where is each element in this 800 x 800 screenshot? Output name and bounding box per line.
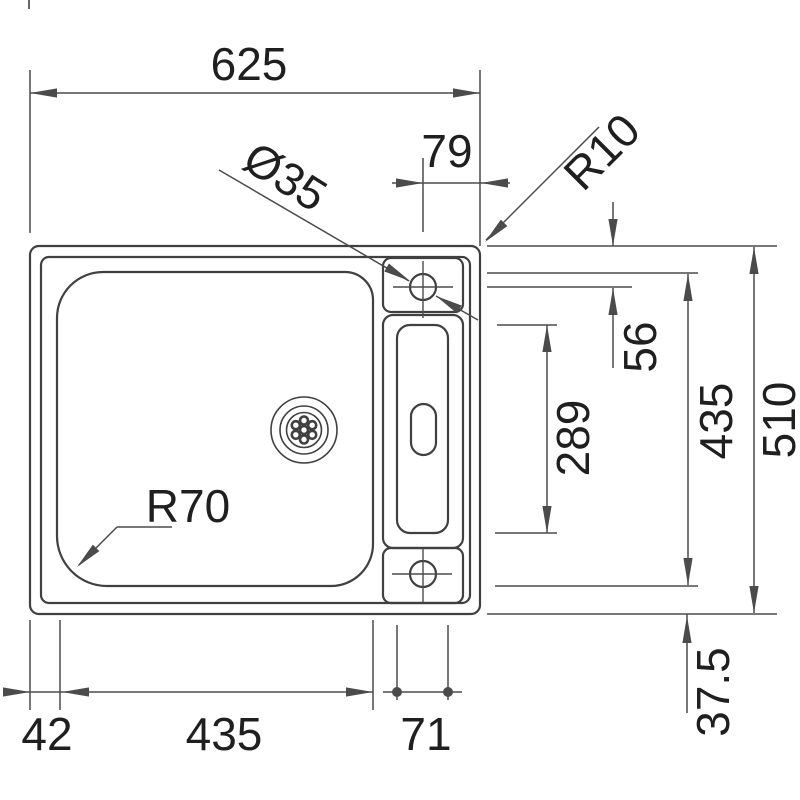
drain bbox=[271, 397, 337, 463]
recess-width-label: 71 bbox=[400, 708, 451, 760]
bowl-width-label: 435 bbox=[186, 708, 263, 760]
leader-bowl-radius: R70 bbox=[74, 480, 230, 570]
bowl-length-label: 435 bbox=[690, 383, 742, 460]
overall-width-label: 625 bbox=[211, 38, 288, 90]
left-margin-label: 42 bbox=[21, 708, 72, 760]
tap-strip bbox=[383, 258, 463, 603]
overall-depth-label: 510 bbox=[753, 382, 800, 459]
drainer-tray bbox=[383, 315, 463, 548]
drain-strainer-holes bbox=[292, 417, 316, 444]
sink-outer-edge bbox=[30, 246, 480, 614]
rim-radius-label: R10 bbox=[553, 103, 649, 199]
tap-inset-label: 56 bbox=[614, 321, 666, 372]
dimension-bowl-length: 435 bbox=[683, 274, 742, 585]
bowl-radius-label: R70 bbox=[146, 480, 230, 532]
dimension-recess-length: 289 bbox=[542, 325, 599, 533]
overflow-slot bbox=[411, 404, 436, 455]
dimension-bottom-row: 42 435 71 bbox=[3, 620, 462, 760]
sink-inner-rim bbox=[41, 257, 470, 603]
dimension-overall-depth: 510 bbox=[749, 247, 800, 613]
dimension-edge-margin: 37.5 bbox=[682, 614, 739, 737]
drain-outer-ring bbox=[271, 397, 337, 463]
dimension-tap-offset: 79 bbox=[392, 125, 510, 232]
recess-length-label: 289 bbox=[547, 400, 599, 477]
sink-technical-drawing: 625 79 Ø35 R10 R70 bbox=[0, 0, 800, 800]
tap-offset-label: 79 bbox=[421, 125, 472, 177]
edge-margin-label: 37.5 bbox=[687, 647, 739, 737]
leader-rim-radius: R10 bbox=[482, 103, 650, 245]
drawing-canvas: 625 79 Ø35 R10 R70 bbox=[0, 0, 800, 800]
sink-body bbox=[29, 0, 480, 614]
drainer-recess bbox=[397, 325, 448, 533]
